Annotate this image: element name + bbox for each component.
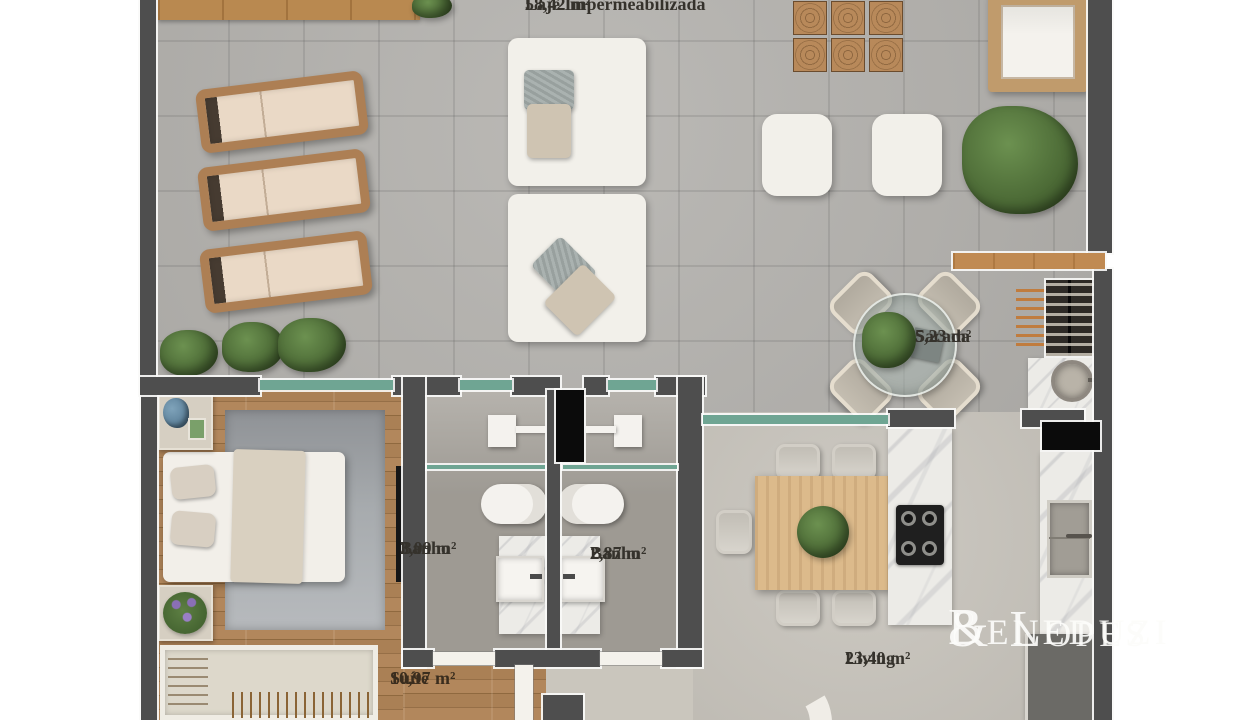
burner-1 (901, 511, 916, 526)
wall-banho2-top (584, 377, 608, 395)
wicker-daybed (988, 0, 1088, 92)
label-suite-area: 10,97 m² (390, 668, 455, 690)
label-banho2-area: 2,87 m² (590, 543, 646, 565)
cooktop (896, 505, 944, 565)
sacada-planter-wall (953, 253, 1105, 269)
shower-head-1 (488, 415, 516, 447)
bed-blanket (230, 449, 305, 584)
wall-hall-stub (543, 695, 583, 720)
kitchen-sink-faucet (1066, 534, 1092, 538)
dining-chair-bottom-1 (776, 590, 820, 626)
nightstand-deco (188, 418, 206, 440)
floorplan-canvas: Laje Impermeabilizada 58,42 m² Sacada 5,… (0, 0, 1240, 720)
label-laje-area: 58,42 m² (525, 0, 590, 16)
daybed-1-pillow-beige (527, 104, 571, 158)
suite-door (515, 665, 533, 720)
nightstand-vase (163, 398, 189, 428)
shower-arm-1 (516, 426, 546, 433)
banho1-door (433, 652, 495, 665)
living-glass-doors (703, 415, 888, 424)
label-living-area: 23,40 m² (845, 648, 910, 670)
burner-2 (922, 511, 937, 526)
duct-shaft-right (1042, 422, 1100, 450)
banho2-door (600, 652, 662, 665)
wall-hall-3 (662, 650, 702, 667)
dining-chair-top-1 (776, 444, 820, 480)
wall-suite-banho1 (403, 377, 425, 667)
wood-cube-table (793, 0, 905, 74)
wall-hall-2 (495, 650, 600, 667)
table-centerpiece-plant (797, 506, 849, 558)
brand-watermark-line2: & Lopes (948, 604, 1149, 656)
bed-pillow-1 (169, 464, 216, 500)
dining-chair-top-2 (832, 444, 876, 480)
bed-pillow-2 (170, 510, 217, 548)
shower-glass-2 (563, 465, 677, 469)
vanity-sink-1 (496, 556, 544, 602)
dining-chair-bottom-2 (832, 590, 876, 626)
wall-hall-1 (403, 650, 433, 667)
kitchen-sink (1047, 500, 1092, 578)
duct-shaft-center (556, 390, 584, 462)
wall-living-top (888, 410, 954, 427)
label-sacada-area: 5,23 m² (915, 326, 971, 348)
banho2-window (608, 380, 656, 390)
toilet-1 (481, 484, 547, 524)
pouf-1 (762, 114, 832, 196)
shower-head-2 (614, 415, 642, 447)
grill-skewers (1016, 286, 1046, 352)
tv-panel (396, 466, 403, 582)
flower-plant (163, 592, 207, 634)
banho1-window (460, 380, 512, 390)
suite-window (260, 380, 393, 390)
wall-banho2-living (678, 377, 702, 667)
wall-terrace-suite (140, 377, 260, 395)
shower-arm-2 (586, 426, 616, 433)
wall-left-terrace (140, 0, 156, 380)
barbecue-grill (1046, 280, 1098, 356)
dining-chair-left (716, 510, 752, 554)
pouf-2 (872, 114, 942, 196)
terrace-bench (158, 0, 420, 20)
burner-4 (922, 541, 937, 556)
vanity-faucet-2 (563, 574, 575, 579)
toilet-2 (558, 484, 624, 524)
closet-hangers (225, 692, 371, 718)
closet-shelf (168, 652, 208, 712)
label-banho1-area: 3,09 m² (400, 538, 456, 560)
wall-right-top (1088, 0, 1112, 253)
grill-round-sink (1051, 360, 1093, 402)
burner-3 (901, 541, 916, 556)
wall-left-suite (141, 380, 157, 720)
vanity-faucet-1 (530, 574, 542, 579)
shower-glass-1 (427, 465, 545, 469)
